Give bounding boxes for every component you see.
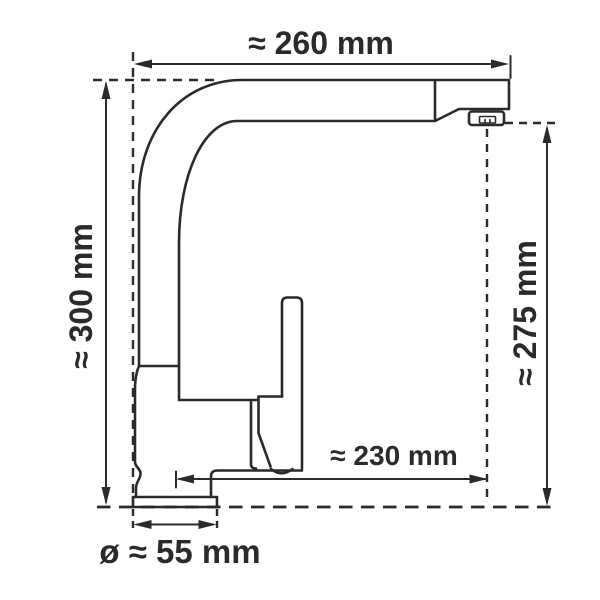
width-dimension-label: ≈ 260 mm	[248, 25, 394, 61]
body-left-edge	[135, 366, 141, 497]
reach-arrow-right	[470, 475, 488, 484]
diagram-svg: ≈ 260 mm ≈ 300 mm ≈ 275 mm ≈ 230 mm ø ≈ …	[0, 0, 600, 600]
height-right-arrow-down	[543, 488, 552, 506]
height-right-dimension-label: ≈ 275 mm	[507, 240, 543, 386]
handle-front-edge	[259, 401, 271, 467]
aerator-detail	[480, 117, 496, 124]
body-right-edge	[251, 400, 256, 469]
body-shoulder-line	[179, 366, 282, 400]
height-left-dimension-label: ≈ 300 mm	[63, 223, 99, 369]
base-deck-line	[211, 471, 302, 498]
base-flange	[133, 497, 217, 507]
spout-outline	[139, 80, 509, 366]
diameter-arrow-right	[199, 520, 217, 529]
width-arrow-left	[134, 60, 152, 69]
faucet-dimension-diagram: ≈ 260 mm ≈ 300 mm ≈ 275 mm ≈ 230 mm ø ≈ …	[0, 0, 600, 600]
handle-lever	[282, 298, 302, 469]
reach-arrow-left	[176, 475, 194, 484]
width-arrow-right	[491, 60, 509, 69]
diameter-arrow-left	[134, 520, 152, 529]
reach-dimension-label: ≈ 230 mm	[330, 440, 457, 471]
height-right-arrow-up	[543, 125, 552, 143]
height-left-arrow-down	[102, 487, 111, 505]
diameter-dimension-label: ø ≈ 55 mm	[99, 533, 260, 570]
height-left-arrow-up	[102, 81, 111, 99]
